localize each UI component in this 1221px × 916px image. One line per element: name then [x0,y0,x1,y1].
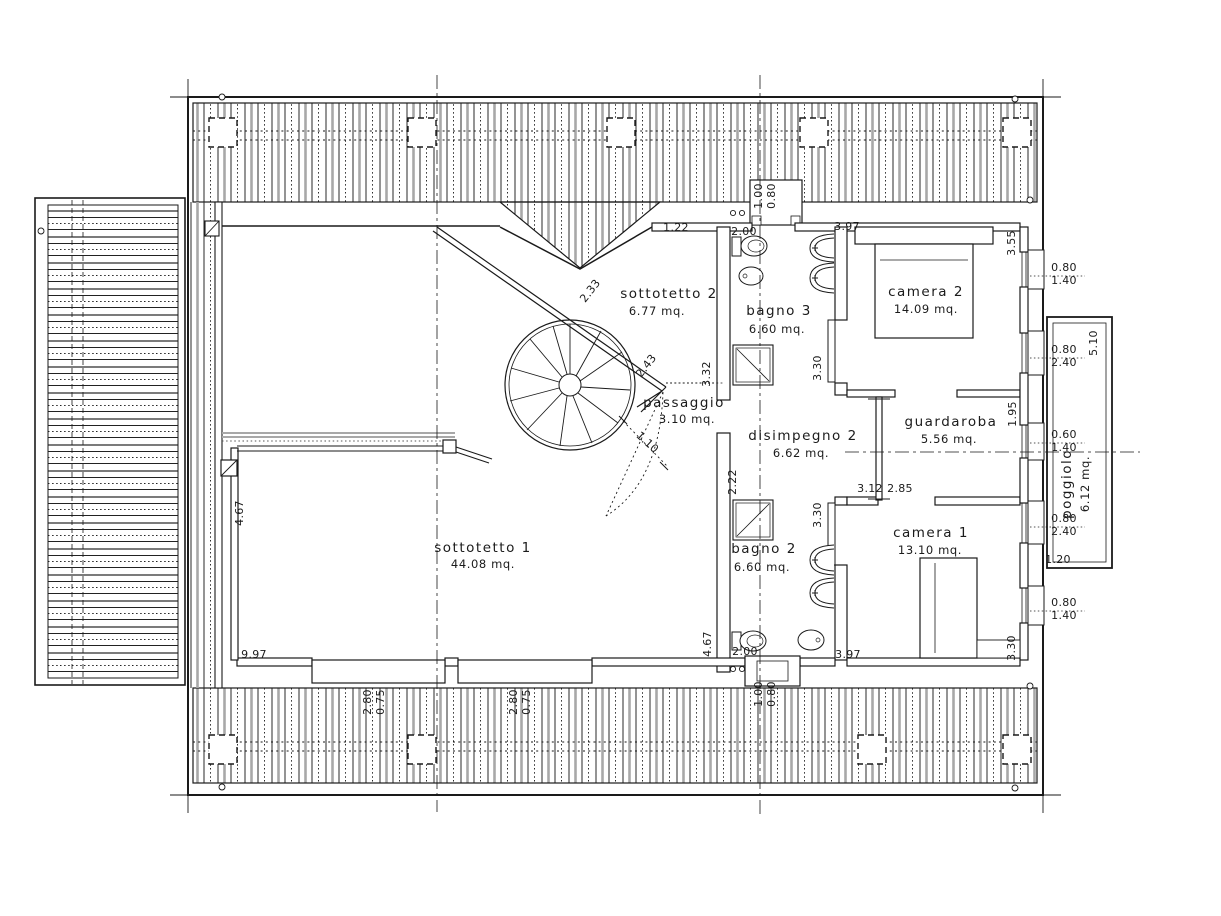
dimension-label: 2.40 [1051,525,1077,538]
bed-camera1 [920,558,977,658]
room-label-bagno-3: bagno 3 [746,303,812,319]
dimension-label: 2.00 [732,645,758,658]
dimension-label: 3.32 [700,361,713,387]
room-area-guardaroba: 5.56 mq. [921,432,977,446]
dimension-label: 3.30 [811,355,824,381]
dimension-label: 0.80 [1051,343,1077,356]
dimension-label: 1.40 [1051,441,1077,454]
room-label-bagno-2: bagno 2 [731,541,797,557]
dimension-label: 9.97 [241,648,267,661]
room-area-poggiolo: 6.12 mq. [1078,456,1092,512]
dimension-label: 3.97 [834,220,860,233]
room-label-passaggio: passaggio [643,395,725,411]
room-label-disimpegno-2: disimpegno 2 [748,428,857,444]
west-wall [190,202,222,688]
room-area-bagno-2: 6.60 mq. [734,560,790,574]
dimension-label: 1.40 [1051,609,1077,622]
toilet-bagno3 [732,236,767,256]
room-area-passaggio: 3.10 mq. [659,412,715,426]
dimension-label: 0.80 [1051,596,1077,609]
dimension-label: 4.67 [701,631,714,657]
dimension-label: 3.12 [857,482,883,495]
dimension-label: 1.00 [752,681,765,707]
dimension-label: 0.75 [374,689,387,715]
dimension-label: 1.95 [1006,401,1019,427]
dimension-label: 2.40 [1051,356,1077,369]
dimension-label: 1.40 [1051,274,1077,287]
dimension-label: 2.80 [361,689,374,715]
dimension-label: 2.00 [731,225,757,238]
room-area-camera-2: 14.09 mq. [894,302,958,316]
floor-plan-drawing: sottotetto 144.08 mq.sottotetto 26.77 mq… [0,0,1221,916]
room-label-camera-1: camera 1 [893,525,969,541]
door-bagno3 [828,320,835,382]
room-area-sottotetto-1: 44.08 mq. [451,557,515,571]
dimension-label: 1.00 [752,183,765,209]
room-area-sottotetto-2: 6.77 mq. [629,304,685,318]
dimension-label: 3.97 [835,648,861,661]
room-label-sottotetto-2: sottotetto 2 [620,286,717,302]
room-label-camera-2: camera 2 [888,284,964,300]
wardrobe-camera2 [855,227,993,244]
dimension-label: 3.30 [811,502,824,528]
dimension-label: 2.22 [726,469,739,495]
room-area-disimpegno-2: 6.62 mq. [773,446,829,460]
dimension-label: 0.80 [1051,512,1077,525]
bidet-bagno2 [798,630,824,650]
dimension-label: 0.80 [1051,261,1077,274]
dimension-label: 0.75 [520,689,533,715]
left-roof [35,198,185,685]
shower-bagno3 [733,345,773,385]
room-label-guardaroba: guardaroba [905,414,998,430]
dimension-label: 1.22 [663,221,689,234]
dimension-label: 5.10 [1087,330,1100,356]
dimension-label: 3.30 [1005,635,1018,661]
dimension-label: 0.80 [765,681,778,707]
bidet-bagno3 [739,267,763,285]
dimension-label: 4.67 [233,500,246,526]
dimension-label: 1.20 [1045,553,1071,566]
dimension-label: 3.55 [1005,230,1018,256]
room-area-camera-1: 13.10 mq. [898,543,962,557]
bottom-roof [193,683,1037,791]
dimension-label: 2.85 [887,482,913,495]
shower-bagno2 [733,500,773,540]
room-area-bagno-3: 6.60 mq. [749,322,805,336]
room-label-sottotetto-1: sottotetto 1 [434,540,531,556]
floor-plan-page: sottotetto 144.08 mq.sottotetto 26.77 mq… [0,0,1221,916]
dimension-label: 0.60 [1051,428,1077,441]
dimension-label: 2.80 [507,689,520,715]
dimension-label: 0.80 [765,183,778,209]
room-label-poggiolo: poggiolo [1059,449,1075,519]
